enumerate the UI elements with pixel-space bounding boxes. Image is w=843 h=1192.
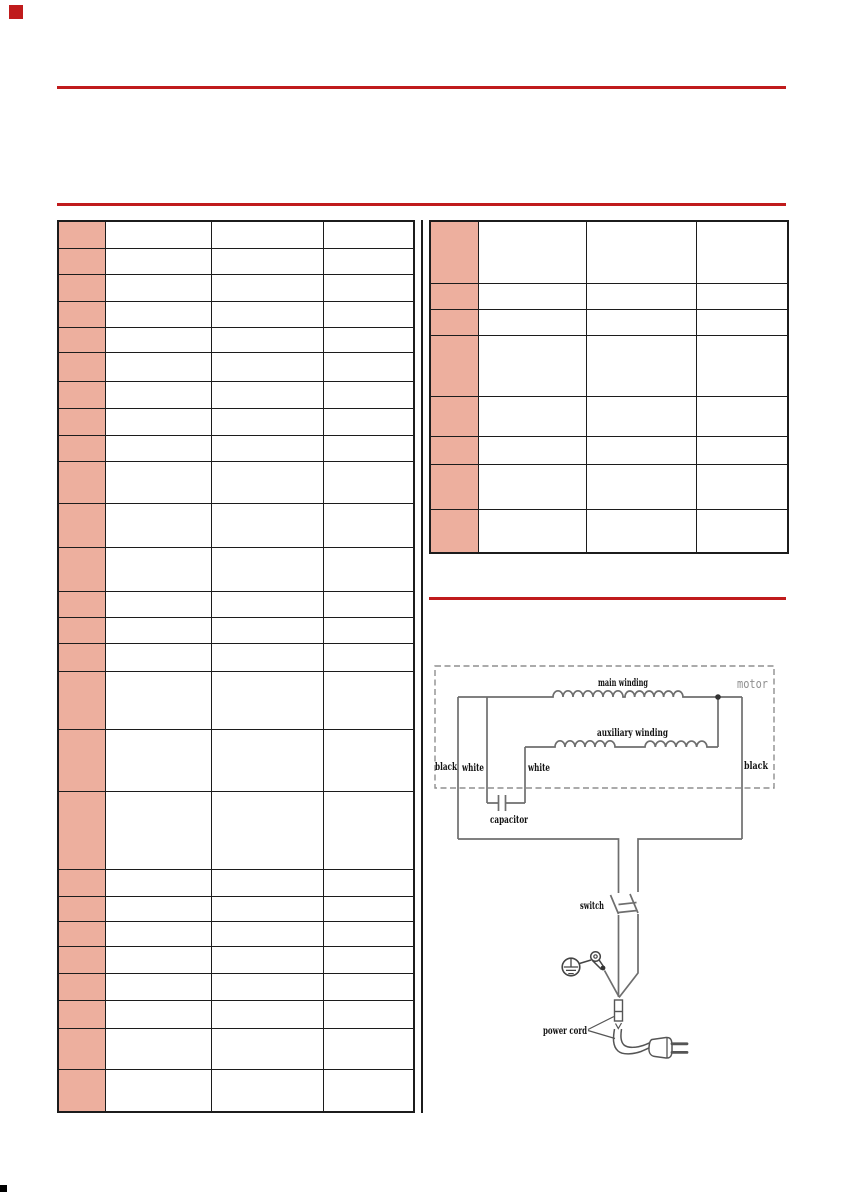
table-cell [323,591,414,617]
table-cell [211,274,323,301]
table-cell [323,381,414,408]
table-cell-highlight [430,335,478,396]
table-cell [105,503,211,547]
table-cell [586,436,696,464]
table-cell [105,946,211,973]
table-row [430,335,788,396]
crimp-dot [601,966,606,971]
table-row [58,503,414,547]
table-cell [323,1000,414,1028]
table-row [430,509,788,553]
label-motor: motor [737,677,768,691]
table-cell [696,396,788,436]
right-parts-table [429,220,789,554]
power-cord-pointer [588,1017,615,1039]
top-red-rule [57,86,786,89]
table-cell [211,503,323,547]
table-cell [211,1028,323,1069]
table-cell [211,896,323,921]
table-row [58,791,414,869]
table-cell-highlight [58,274,105,301]
table-cell [105,1069,211,1112]
table-cell [105,617,211,643]
table-cell [211,327,323,352]
table-cell [323,221,414,248]
table-cell-highlight [58,671,105,729]
table-cell [211,973,323,1000]
table-row [58,671,414,729]
table-cell [323,547,414,591]
table-cell-highlight [58,617,105,643]
table-cell [323,461,414,503]
table-row [58,435,414,461]
table-cell [105,1000,211,1028]
table-cell [323,327,414,352]
table-cell [105,435,211,461]
right-section-red-rule [429,597,786,600]
table-row [58,1069,414,1112]
table-cell [211,248,323,274]
table-cell [696,309,788,335]
table-cell [105,896,211,921]
label-power-cord: power cord [543,1025,587,1037]
switch-output-wires [619,914,639,998]
table-cell [478,436,586,464]
bottom-rail-left [458,839,619,893]
table-cell [105,671,211,729]
table-cell [211,352,323,381]
table-cell [211,1069,323,1112]
table-row [58,408,414,435]
table-cell-highlight [58,547,105,591]
table-row [58,248,414,274]
table-cell [211,591,323,617]
table-cell-highlight [58,503,105,547]
table-cell-highlight [58,381,105,408]
table-cell [586,509,696,553]
table-row [58,617,414,643]
table-cell [478,309,586,335]
red-corner-mark [9,5,23,19]
table-cell [211,1000,323,1028]
table-cell-highlight [58,946,105,973]
table-cell-highlight [58,643,105,671]
table-cell [478,283,586,309]
column-divider-line [421,220,423,1113]
table-cell [211,946,323,973]
table-row [58,327,414,352]
table-row [58,869,414,896]
table-cell-highlight [58,248,105,274]
table-cell-highlight [430,396,478,436]
table-row [58,352,414,381]
table-row [58,946,414,973]
table-row [58,547,414,591]
table-cell [105,221,211,248]
label-main-winding: main winding [598,677,648,689]
junction-dot [715,694,721,700]
table-row [58,221,414,248]
manual-page: main winding motor auxiliary winding bla… [0,0,843,1192]
table-cell [696,221,788,283]
table-cell-highlight [58,221,105,248]
table-cell [105,643,211,671]
table-cell-highlight [58,327,105,352]
ground-symbol [562,958,580,976]
table-cell-highlight [58,921,105,946]
table-cell [586,464,696,509]
table-cell [323,869,414,896]
table-row [58,921,414,946]
table-cell [323,1069,414,1112]
table-row [430,283,788,309]
main-winding-coil [458,691,742,697]
table-cell [105,973,211,1000]
table-cell-highlight [58,729,105,791]
label-white-left: white [461,762,484,774]
table-cell [478,396,586,436]
table-cell-highlight [58,973,105,1000]
table-cell-highlight [58,435,105,461]
table-cell [211,617,323,643]
table-cell [323,503,414,547]
table-cell [323,729,414,791]
table-cell [323,896,414,921]
table-cell [478,509,586,553]
label-switch: switch [580,900,604,912]
label-capacitor: capacitor [490,814,528,826]
table-cell [105,547,211,591]
bottom-rail-right [638,839,742,892]
table-cell [211,643,323,671]
table-row [430,396,788,436]
table-cell [696,509,788,553]
table-row [430,436,788,464]
table-row [430,309,788,335]
table-cell [696,436,788,464]
table-row [58,896,414,921]
table-cell-highlight [58,301,105,327]
table-cell [211,729,323,791]
table-cell [211,671,323,729]
table-cell [323,248,414,274]
label-white-mid: white [527,762,550,774]
table-cell [323,1028,414,1069]
cable-clamp [615,1000,623,1029]
table-cell [105,1028,211,1069]
label-auxiliary-winding: auxiliary winding [597,727,668,739]
table-row [58,301,414,327]
table-cell [211,869,323,896]
table-cell [696,283,788,309]
table-cell [696,464,788,509]
table-cell [211,381,323,408]
table-cell-highlight [58,352,105,381]
table-row [430,464,788,509]
table-cell-highlight [58,591,105,617]
black-corner-mark [0,1185,7,1192]
ring-terminal [580,952,605,970]
table-cell [211,408,323,435]
table-cell [105,248,211,274]
table-cell-highlight [58,1028,105,1069]
power-plug [649,1037,687,1058]
table-cell [211,547,323,591]
table-row [430,221,788,283]
table-cell [105,791,211,869]
earth-wire [605,971,619,997]
table-cell [211,301,323,327]
table-row [58,381,414,408]
table-cell-highlight [430,221,478,283]
table-cell [323,671,414,729]
table-cell [586,309,696,335]
table-cell [323,274,414,301]
table-cell [323,946,414,973]
table-cell [211,791,323,869]
table-cell [478,221,586,283]
power-cord-cable [613,1029,652,1054]
table-cell-highlight [58,408,105,435]
switch-symbol [611,894,639,914]
table-cell [323,617,414,643]
table-row [58,643,414,671]
table-row [58,461,414,503]
table-cell [105,352,211,381]
table-cell [105,729,211,791]
table-cell [105,461,211,503]
table-row [58,973,414,1000]
table-cell [323,301,414,327]
table-cell [105,327,211,352]
table-cell-highlight [430,464,478,509]
label-black-left: black [435,761,457,773]
second-red-rule [57,203,786,206]
table-cell-highlight [58,869,105,896]
table-cell [323,973,414,1000]
table-cell [105,301,211,327]
table-cell-highlight [430,436,478,464]
table-row [58,729,414,791]
table-cell [323,352,414,381]
table-cell [323,643,414,671]
capacitor-symbol [487,795,525,811]
table-cell [586,396,696,436]
table-cell [478,335,586,396]
wiring-diagram: main winding motor auxiliary winding bla… [430,655,800,1075]
table-cell [211,221,323,248]
table-cell [211,461,323,503]
table-cell [211,435,323,461]
table-cell [323,921,414,946]
table-row [58,1000,414,1028]
table-cell [586,335,696,396]
table-cell [105,274,211,301]
table-cell [478,464,586,509]
table-cell [105,591,211,617]
table-cell-highlight [58,896,105,921]
table-cell [323,435,414,461]
table-cell [586,221,696,283]
table-cell [105,381,211,408]
table-row [58,274,414,301]
table-cell-highlight [430,309,478,335]
table-cell [323,408,414,435]
table-cell [105,408,211,435]
table-cell [586,283,696,309]
table-cell [211,921,323,946]
auxiliary-winding-coil [525,741,718,747]
table-cell [323,791,414,869]
table-cell-highlight [58,1000,105,1028]
table-cell-highlight [430,509,478,553]
table-cell-highlight [58,791,105,869]
table-row [58,591,414,617]
plug-prongs [672,1044,687,1053]
table-cell [105,869,211,896]
table-cell-highlight [58,1069,105,1112]
left-parts-table [57,220,415,1113]
table-cell-highlight [430,283,478,309]
table-row [58,1028,414,1069]
table-cell-highlight [58,461,105,503]
table-cell [696,335,788,396]
label-black-right: black [744,760,769,772]
table-cell [105,921,211,946]
